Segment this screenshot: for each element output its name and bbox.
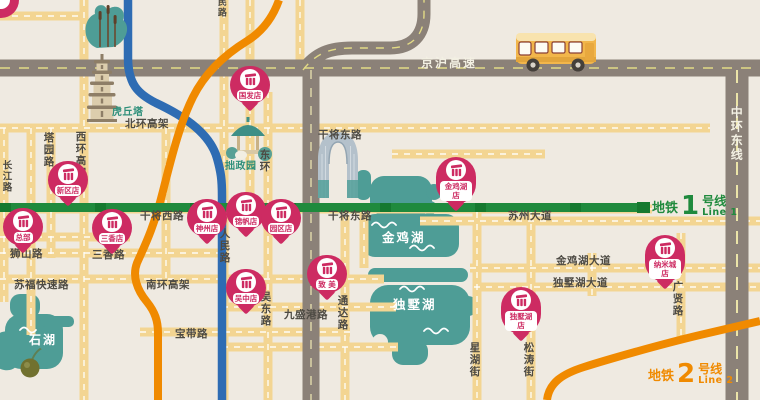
line2-system-label: 地铁 xyxy=(648,365,674,384)
lake-label-jinji: 金鸡湖 xyxy=(382,231,426,245)
store-pin-yuanqu[interactable]: 园区店 xyxy=(261,199,301,242)
road-label-songtao-st: 松涛街 xyxy=(522,342,534,378)
road-label-changjiang-rd: 长江路 xyxy=(0,160,10,193)
store-pin-dushuhu[interactable]: 独墅湖店 xyxy=(501,287,541,339)
store-pin-label: 致 美 xyxy=(316,279,338,290)
line1-name-en: Line 1 xyxy=(702,208,737,218)
brand-logo-icon xyxy=(58,164,78,184)
store-pin-shenzhou[interactable]: 神州店 xyxy=(187,199,227,242)
store-pin-jinfan[interactable]: 锦帆店 xyxy=(226,192,266,235)
brand-logo-icon xyxy=(446,160,466,180)
store-pin-nanomicheng[interactable]: 纳米城店 xyxy=(645,235,685,287)
brand-logo-icon xyxy=(511,290,531,310)
brand-logo-icon xyxy=(271,202,291,222)
store-pin-zhimei[interactable]: 致 美 xyxy=(307,255,347,298)
store-pin-label: 国发店 xyxy=(237,90,264,101)
store-pin-jinjihu[interactable]: 金鸡湖店 xyxy=(436,157,476,209)
road-label-ganjiang-west: 干将西路 xyxy=(140,211,184,223)
road-label-jinjihu-ave: 金鸡湖大道 xyxy=(556,256,611,268)
line1-terminus xyxy=(637,202,650,213)
brand-logo-icon xyxy=(236,272,256,292)
road-label-sufu-expwy: 苏福快速路 xyxy=(14,280,69,292)
store-pin-label: 独墅湖店 xyxy=(505,311,537,331)
brand-logo-icon xyxy=(197,202,217,222)
road-label-beihuan-viaduct: 北环高架 xyxy=(125,119,169,131)
store-pin-label: 总部 xyxy=(14,232,33,243)
brand-logo-icon xyxy=(655,238,675,258)
reeds-icon xyxy=(86,5,128,48)
landmark-label-garden: 拙政园 xyxy=(225,161,257,172)
road-label-baodai-rd: 宝带路 xyxy=(175,329,208,341)
brand-logo-icon xyxy=(102,212,122,232)
road-label-jiushenggang-rd: 九盛港路 xyxy=(284,310,328,322)
metro-line2-badge: 地铁 2 号线 Line 2 xyxy=(648,363,734,386)
store-pin-label: 纳米城店 xyxy=(649,259,681,279)
map-base xyxy=(0,0,760,400)
line2-number: 2 xyxy=(677,363,695,386)
road-label-zhonghuan-east: 中环东线 xyxy=(729,106,742,162)
line1-system-label: 地铁 xyxy=(652,197,678,216)
store-pin-label: 园区店 xyxy=(268,223,295,234)
road-label-ganjiang-east: 干将东路 xyxy=(328,211,372,223)
road-label-xinghu-st: 星湖街 xyxy=(468,342,480,378)
store-pin-xinqu[interactable]: 新区店 xyxy=(48,161,88,204)
road-label-ganjiang-east-upper: 干将东路 xyxy=(318,130,362,142)
road-label-tongda-rd: 通达路 xyxy=(336,295,348,331)
map-canvas: 北环高架 京沪高速 干将东路 干将西路 干将东路 苏州大道 狮山路 三香路 苏福… xyxy=(0,0,760,400)
brand-logo-icon xyxy=(317,258,337,278)
brand-logo-icon xyxy=(240,69,260,89)
line2-name-en: Line 2 xyxy=(698,376,733,386)
road-label-nanhuan-viaduct: 南环高架 xyxy=(146,280,190,292)
lake-label-shi: 石湖 xyxy=(29,334,57,347)
store-pin-label: 新区店 xyxy=(55,185,82,196)
brand-logo-icon xyxy=(13,211,33,231)
road-label-suzhou-ave: 苏州大道 xyxy=(508,211,552,223)
store-pin-label: 神州店 xyxy=(194,223,221,234)
brand-logo-icon xyxy=(236,195,256,215)
metro-line1-badge: 地铁 1 号线 Line 1 xyxy=(652,195,738,218)
store-pin-wuzhong[interactable]: 吴中店 xyxy=(226,269,266,312)
lake-label-dushu: 独墅湖 xyxy=(393,298,437,312)
road-label-donghuan: 东环 xyxy=(258,149,270,173)
road-label-dushuhu-ave: 独墅湖大道 xyxy=(553,278,608,290)
landmark-label-pagoda: 虎丘塔 xyxy=(112,107,144,118)
store-pin-sanxiang[interactable]: 三香店 xyxy=(92,209,132,252)
road-label-jinghu-expwy: 京沪高速 xyxy=(421,57,477,70)
line1-number: 1 xyxy=(681,195,699,218)
store-pin-label: 金鸡湖店 xyxy=(440,181,472,201)
store-pin-label: 吴中店 xyxy=(233,293,260,304)
road-label-renmin-rd-top: 民路 xyxy=(215,0,225,18)
store-pin-guofa[interactable]: 国发店 xyxy=(230,66,270,109)
store-pin-label: 锦帆店 xyxy=(233,216,260,227)
store-pin-label: 三香店 xyxy=(99,233,126,244)
gate-of-orient-icon xyxy=(318,132,358,198)
store-pin-headquarters[interactable]: 总部 xyxy=(3,208,43,251)
